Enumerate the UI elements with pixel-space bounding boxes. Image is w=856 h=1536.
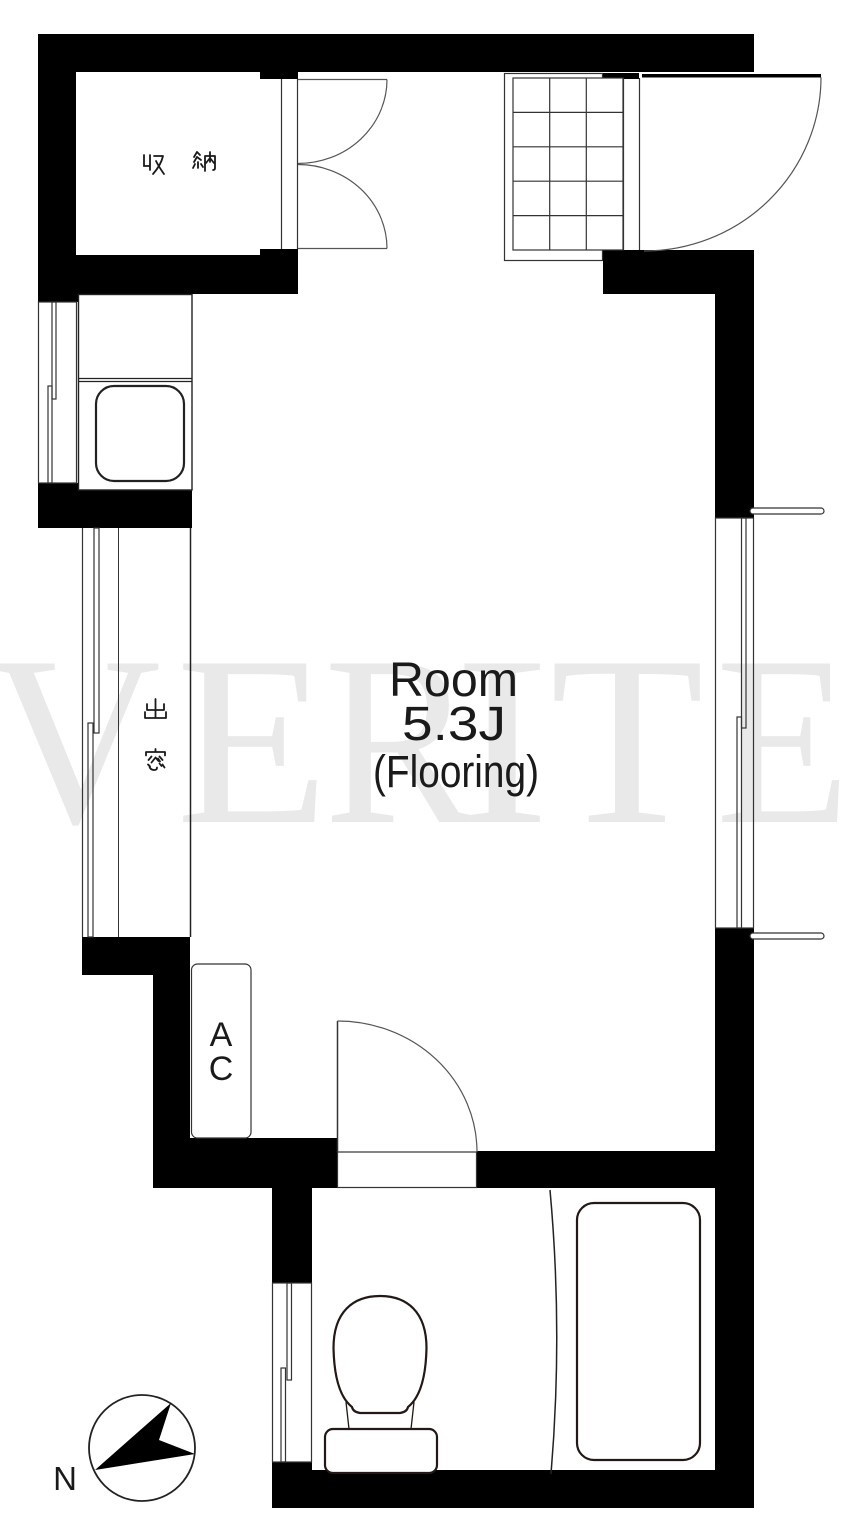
svg-text:C: C: [209, 1050, 234, 1088]
svg-text:N: N: [53, 1460, 77, 1497]
svg-text:T: T: [550, 607, 704, 875]
svg-text:(Flooring): (Flooring): [373, 746, 539, 797]
svg-text:V: V: [0, 607, 161, 875]
svg-text:E: E: [716, 607, 850, 875]
svg-text:5.3J: 5.3J: [402, 698, 506, 751]
svg-text:A: A: [210, 1016, 233, 1054]
svg-text:E: E: [176, 607, 329, 875]
